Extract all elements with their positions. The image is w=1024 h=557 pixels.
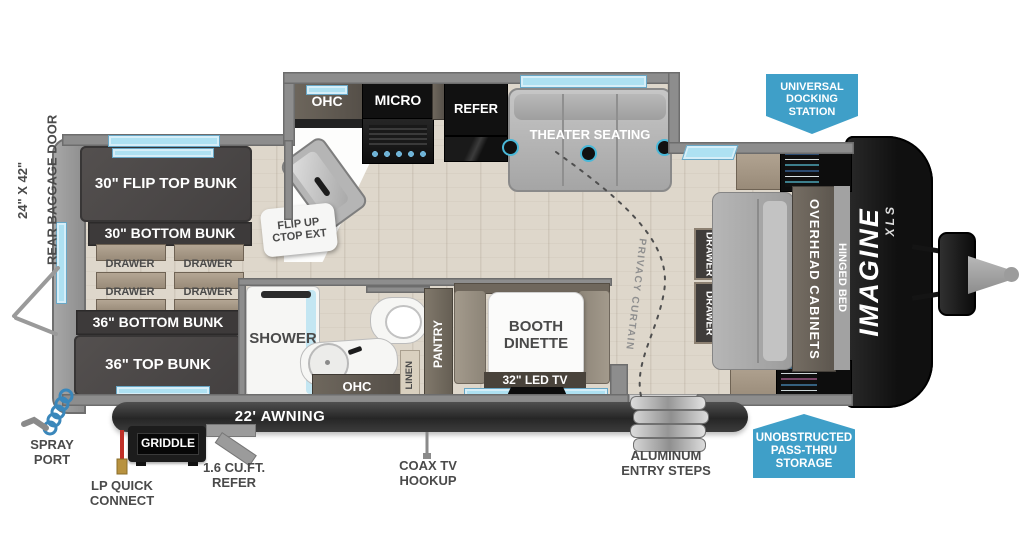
griddle-label-plate: GRIDDLE (137, 433, 199, 455)
bottom-bunk-30-label: 30" BOTTOM BUNK (105, 226, 236, 241)
theater-slide-window (520, 75, 647, 88)
universal-docking-station-badge: UNIVERSAL DOCKING STATION (766, 74, 858, 134)
lp-connector (117, 459, 127, 474)
wall-kitchen-divider (284, 140, 293, 220)
theater-label-wrap: THEATER SEATING (510, 124, 670, 146)
rear-baggage-door-label: 24" X 42" REAR BAGGAGE DOOR (16, 80, 60, 300)
kitchen-skylight (306, 85, 348, 95)
nightstand-top (736, 148, 782, 190)
microwave: MICRO (362, 82, 434, 120)
tv-cabinet: 32" LED TV (484, 372, 586, 389)
entry-steps (630, 396, 704, 456)
griddle: GRIDDLE (128, 426, 206, 462)
logo-xls: XLS (883, 204, 897, 236)
bed (712, 192, 794, 370)
step (633, 410, 709, 424)
awning-label-wrap: 22' AWNING (150, 406, 410, 428)
refrigerator-lower-door (444, 136, 508, 162)
spray-nozzle (24, 420, 46, 428)
outside-refer-bracket-top (206, 424, 256, 437)
overhead-cabinets: OVERHEAD CABINETS (792, 186, 836, 372)
booth-dinette-label: BOOTH DINETTE (504, 319, 568, 353)
spray-port-label: SPRAY PORT (14, 436, 90, 470)
logo-imagine: IMAGINE (856, 207, 883, 337)
floorplan-canvas: 30" FLIP TOP BUNK 30" BOTTOM BUNK DRAWER… (0, 0, 1024, 557)
entry-side-wall (610, 364, 628, 398)
hinged-bed-strip: HINGED BED (834, 186, 850, 370)
griddle-label: GRIDDLE (141, 437, 195, 450)
bunk-wall-window (108, 135, 220, 147)
lp-quick-connect-label: LP QUICK CONNECT (66, 478, 178, 510)
overhead-cabinets-label: OVERHEAD CABINETS (807, 199, 821, 360)
bath-ohc-label: OHC (343, 380, 372, 394)
kitchen-ohc-label: OHC (311, 94, 342, 109)
theater-seating-label: THEATER SEATING (530, 128, 651, 142)
bunk-drawer-label: DRAWER (174, 286, 242, 299)
bottom-bunk-30: 30" BOTTOM BUNK (88, 222, 252, 246)
brand-logo: IMAGINE XLS (856, 190, 920, 354)
hinged-bed-label: HINGED BED (836, 243, 848, 312)
awning-label: 22' AWNING (235, 409, 326, 426)
flip-top-bunk-label: 30" FLIP TOP BUNK (95, 176, 237, 193)
kitchen-cabinet-base (290, 119, 362, 128)
bunk-drawer-label: DRAWER (174, 258, 242, 271)
pantry-label: PANTRY (432, 320, 445, 368)
griddle-foot (136, 462, 146, 466)
bedroom-window (682, 145, 739, 160)
hitch-ball-tip (1004, 267, 1019, 282)
shower-label: SHOWER (249, 331, 317, 348)
bath-left-wall (238, 278, 246, 398)
toilet-nook-wall (366, 286, 430, 293)
flip-up-countertop-label: FLIP UP CTOP EXT (271, 215, 328, 245)
rear-door-size: 24" X 42" (16, 115, 31, 265)
bottom-bunk-36: 36" BOTTOM BUNK (76, 310, 240, 335)
step (630, 424, 706, 438)
pantry: PANTRY (424, 288, 453, 400)
refrigerator-label: REFER (454, 102, 498, 116)
bunk-top-window (112, 148, 214, 158)
tv-label: 32" LED TV (502, 374, 567, 387)
oven-vents (369, 125, 427, 145)
rear-door-name: REAR BAGGAGE DOOR (45, 115, 60, 265)
bunk-drawer-label: DRAWER (96, 258, 164, 271)
burner-knobs (369, 150, 427, 158)
range-stove (362, 118, 434, 164)
refrigerator: REFER (444, 82, 508, 136)
outside-refer-label: 1.6 CU.FT. REFER (196, 460, 272, 492)
microwave-label: MICRO (375, 93, 422, 108)
cupholder (580, 145, 597, 162)
flip-up-countertop-callout: FLIP UP CTOP EXT (260, 202, 339, 257)
pass-thru-storage-badge: UNOBSTRUCTED PASS-THRU STORAGE (753, 414, 855, 478)
entry-steps-label: ALUMINUM ENTRY STEPS (614, 448, 718, 480)
bunk-drawer-label: DRAWER (96, 286, 164, 299)
coax-tv-hookup-label: COAX TV HOOKUP (392, 458, 464, 490)
step (630, 396, 706, 410)
shower-rod (261, 291, 311, 298)
dinette-table: BOOTH DINETTE (488, 292, 584, 380)
hanging-clothes (785, 149, 819, 187)
bottom-bunk-36-label: 36" BOTTOM BUNK (93, 315, 224, 330)
bath-sink-drain (325, 360, 330, 365)
linen-cabinet: LINEN (400, 350, 420, 400)
toilet-bowl (385, 305, 422, 339)
rear-door-text: 24" X 42" REAR BAGGAGE DOOR (2, 115, 75, 265)
theater-seating: THEATER SEATING (508, 88, 672, 192)
bed-mattress-edge (763, 201, 787, 361)
theater-backrest (514, 94, 666, 120)
bed-fold-seam (757, 199, 759, 363)
top-bunk-36-label: 36" TOP BUNK (105, 357, 211, 374)
cupholder (502, 139, 519, 156)
dinette-bench-left (454, 290, 486, 384)
linen-label: LINEN (405, 361, 416, 390)
